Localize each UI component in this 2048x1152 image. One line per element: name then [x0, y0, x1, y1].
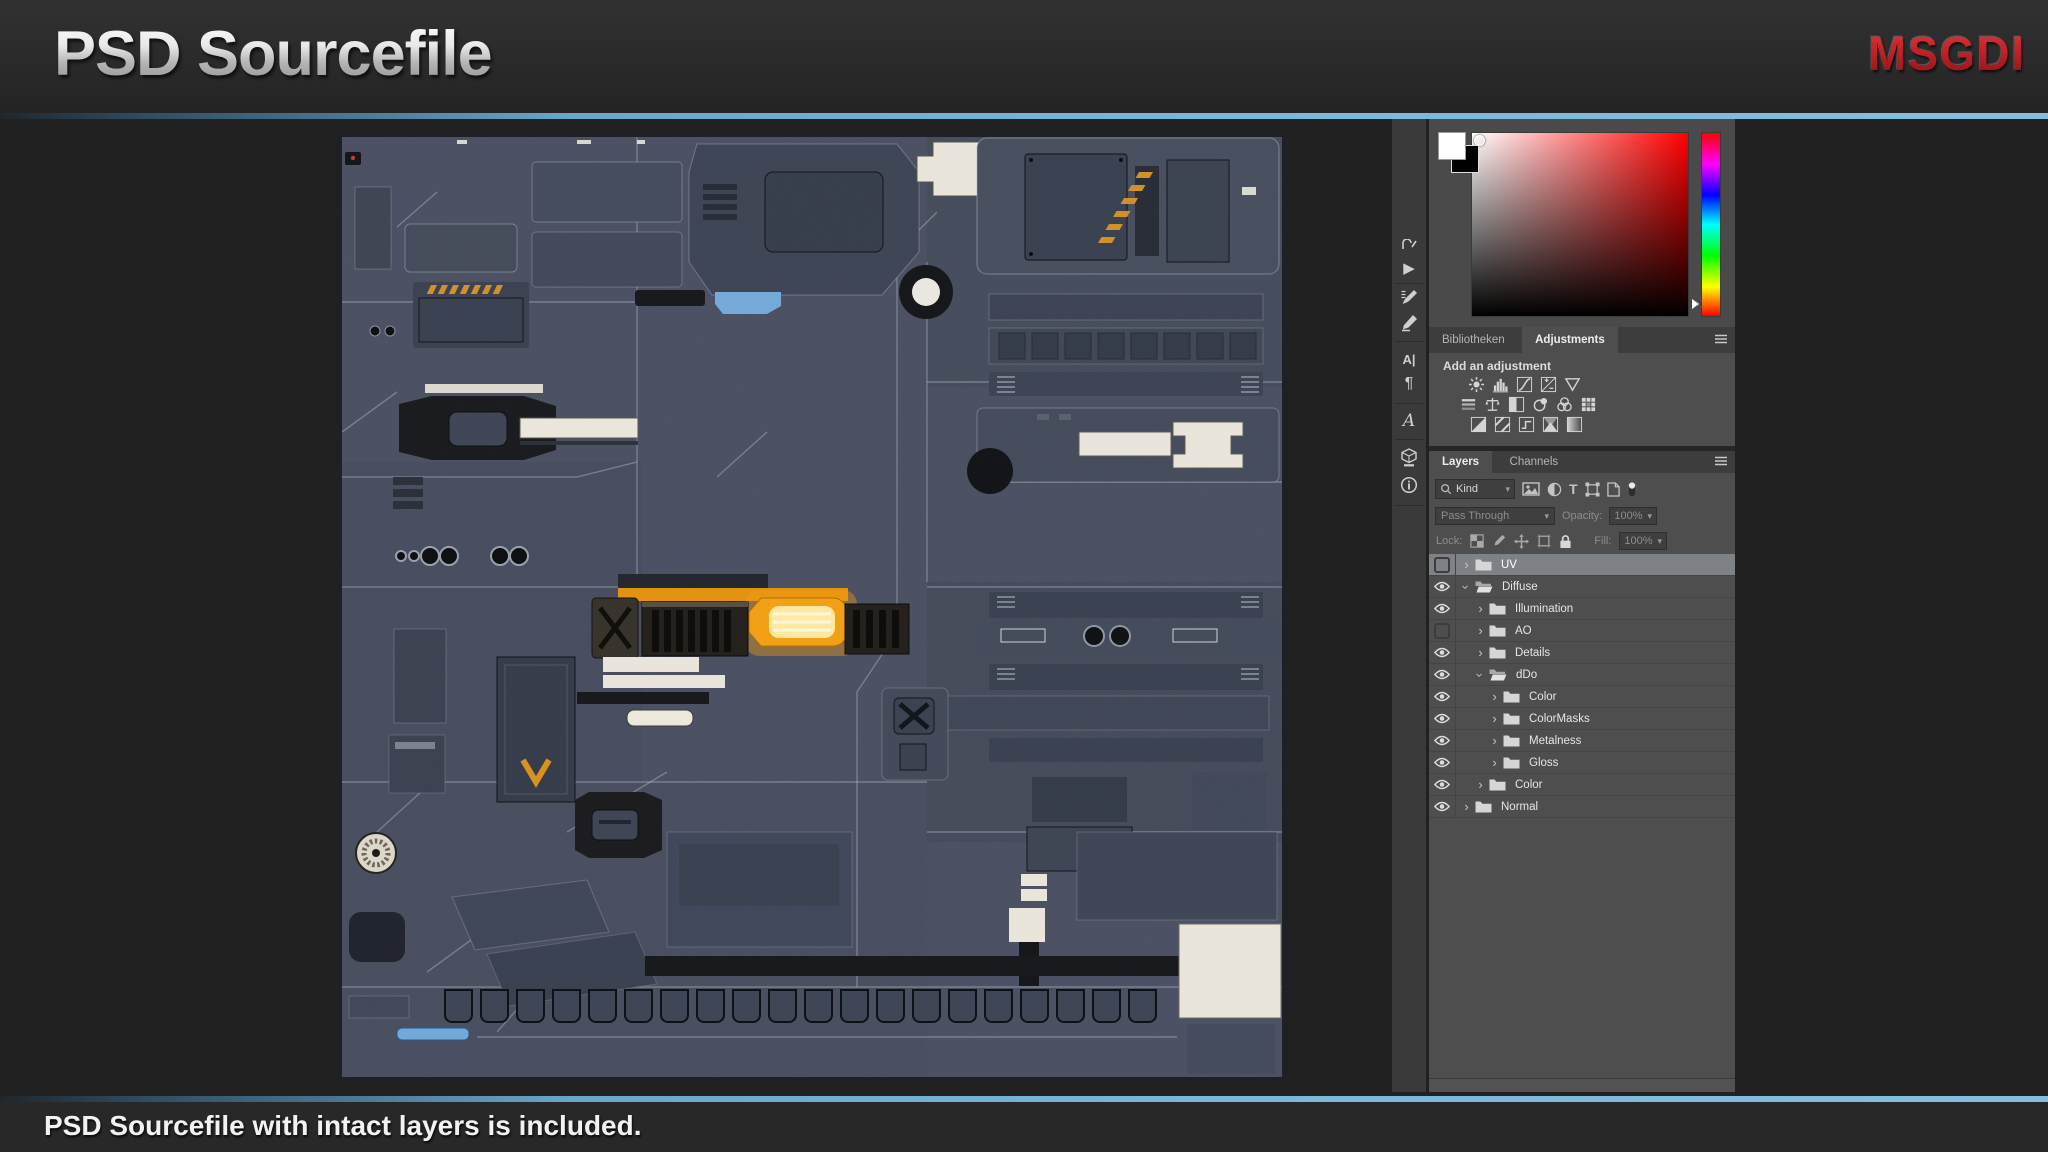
blend-mode-value: Pass Through: [1441, 510, 1509, 522]
layer-list: › UV › Diffuse › Illumination › AO › De: [1429, 554, 1735, 818]
blend-mode-row: Pass Through ▾ Opacity: 100% ▾: [1429, 505, 1735, 527]
chevron-down-icon: ▾: [1544, 512, 1549, 521]
layer-row[interactable]: › Details: [1429, 642, 1735, 664]
layer-name: Metalness: [1529, 735, 1581, 747]
tab-adjustments[interactable]: Adjustments: [1522, 327, 1618, 353]
black-white-icon[interactable]: [1508, 396, 1525, 413]
adjustments-panel: Add an adjustment: [1429, 353, 1735, 446]
layer-row[interactable]: › dDo: [1429, 664, 1735, 686]
expand-arrow-icon[interactable]: ›: [1474, 778, 1487, 791]
expand-arrow-icon[interactable]: ›: [1474, 646, 1487, 659]
opacity-value: 100%: [1614, 510, 1642, 522]
layer-name: Diffuse: [1502, 581, 1538, 593]
glyphs-panel-icon[interactable]: A: [1392, 410, 1426, 432]
pixel-layer-filter-icon[interactable]: [1522, 482, 1540, 496]
invert-icon[interactable]: [1470, 416, 1487, 433]
msgdi-logo: MSGDI: [1868, 26, 2026, 82]
search-icon: [1440, 483, 1452, 495]
folder-icon: [1489, 668, 1507, 681]
layer-row[interactable]: › Illumination: [1429, 598, 1735, 620]
color-picker-panel: [1429, 119, 1735, 327]
tab-layers[interactable]: Layers: [1429, 451, 1492, 473]
tab-channels[interactable]: Channels: [1497, 451, 1572, 473]
expand-arrow-icon[interactable]: ›: [1474, 602, 1487, 615]
expand-arrow-icon[interactable]: ›: [1488, 734, 1501, 747]
folder-icon: [1475, 558, 1492, 571]
visibility-toggle[interactable]: [1429, 642, 1456, 663]
folder-icon: [1489, 778, 1506, 791]
layer-row[interactable]: › UV: [1429, 554, 1735, 576]
clipped-tool-icon[interactable]: [1392, 238, 1426, 250]
page-title: PSD Sourcefile: [54, 18, 492, 90]
character-panel-icon[interactable]: A|: [1392, 349, 1426, 369]
channel-mixer-icon[interactable]: [1556, 396, 1573, 413]
adjustment-layer-filter-icon[interactable]: [1547, 482, 1562, 497]
top-accent-line: [0, 113, 2048, 119]
layer-row[interactable]: › ColorMasks: [1429, 708, 1735, 730]
photo-filter-icon[interactable]: [1532, 396, 1549, 413]
vibrance-icon[interactable]: [1564, 376, 1581, 393]
visibility-toggle[interactable]: [1429, 774, 1456, 795]
visibility-toggle[interactable]: [1429, 796, 1456, 817]
header-bar: PSD Sourcefile MSGDI: [0, 0, 2048, 113]
layer-name: Gloss: [1529, 757, 1558, 769]
type-layer-filter-icon[interactable]: T: [1569, 481, 1578, 497]
foreground-color-swatch[interactable]: [1438, 132, 1466, 160]
layer-filter-row: Kind ▾ T: [1429, 477, 1735, 501]
layer-name: Illumination: [1515, 603, 1573, 615]
opacity-input[interactable]: 100% ▾: [1609, 507, 1657, 525]
folder-icon: [1503, 712, 1520, 725]
folder-icon: [1489, 602, 1506, 615]
saturation-brightness-field[interactable]: [1471, 132, 1689, 317]
panel-menu-icon[interactable]: [1714, 453, 1728, 471]
fill-value: 100%: [1624, 535, 1652, 547]
chevron-down-icon: ▾: [1505, 485, 1510, 494]
layer-name: UV: [1501, 559, 1517, 571]
3d-material-icon[interactable]: [1392, 445, 1426, 469]
hue-slider[interactable]: [1701, 132, 1721, 317]
lock-all-icon[interactable]: [1559, 534, 1572, 549]
opacity-label: Opacity:: [1562, 510, 1602, 522]
paragraph-panel-icon[interactable]: ¶: [1392, 373, 1426, 395]
info-icon[interactable]: [1392, 474, 1426, 496]
layer-row[interactable]: › Normal: [1429, 796, 1735, 818]
layers-panel: Kind ▾ T Pass Through ▾ Opacity: 100%: [1429, 473, 1735, 1092]
add-adjustment-heading: Add an adjustment: [1429, 353, 1735, 373]
texture-map-canvas[interactable]: [337, 132, 1287, 1082]
exposure-icon[interactable]: [1540, 376, 1557, 393]
threshold-icon[interactable]: [1518, 416, 1535, 433]
folder-icon: [1489, 646, 1506, 659]
layer-row[interactable]: › Gloss: [1429, 752, 1735, 774]
layer-row[interactable]: › Metalness: [1429, 730, 1735, 752]
adjustments-tabbar: Bibliotheken Adjustments: [1429, 327, 1735, 353]
folder-icon: [1489, 624, 1506, 637]
brushes-icon[interactable]: [1392, 313, 1426, 333]
levels-icon[interactable]: [1492, 376, 1509, 393]
curves-icon[interactable]: [1516, 376, 1533, 393]
lock-label: Lock:: [1436, 535, 1462, 547]
kind-filter-label: Kind: [1456, 483, 1478, 495]
layer-name: Details: [1515, 647, 1550, 659]
photo-panel-icon-strip: ▶ A| ¶ A: [1392, 119, 1426, 1092]
visibility-toggle[interactable]: [1429, 664, 1456, 685]
folder-icon: [1503, 690, 1520, 703]
color-balance-icon[interactable]: [1484, 396, 1501, 413]
shape-layer-filter-icon[interactable]: [1585, 482, 1600, 497]
expand-arrow-icon[interactable]: ›: [1460, 800, 1473, 813]
visibility-toggle[interactable]: [1429, 576, 1456, 597]
folder-icon: [1503, 734, 1520, 747]
visibility-toggle[interactable]: [1429, 730, 1456, 751]
fill-label: Fill:: [1594, 535, 1611, 547]
kind-filter-dropdown[interactable]: Kind ▾: [1435, 479, 1515, 499]
brush-settings-icon[interactable]: [1392, 288, 1426, 308]
visibility-toggle[interactable]: [1429, 620, 1456, 641]
layer-name: Normal: [1501, 801, 1538, 813]
lock-artboard-icon[interactable]: [1537, 534, 1551, 548]
tab-bibliotheken[interactable]: Bibliotheken: [1429, 327, 1518, 353]
layer-name: ColorMasks: [1529, 713, 1590, 725]
layer-name: Color: [1529, 691, 1556, 703]
folder-icon: [1503, 756, 1520, 769]
layers-panel-footer: [1429, 1078, 1735, 1092]
filter-toggle-icon[interactable]: [1627, 480, 1637, 498]
gradient-map-icon[interactable]: [1542, 416, 1559, 433]
layer-name: Color: [1515, 779, 1542, 791]
folder-icon: [1475, 580, 1493, 593]
expand-arrow-icon[interactable]: ›: [1460, 558, 1473, 571]
layer-name: AO: [1515, 625, 1532, 637]
lock-transparent-pixels-icon[interactable]: [1470, 534, 1484, 548]
visibility-toggle[interactable]: [1429, 554, 1456, 575]
footer-bar: PSD Sourcefile with intact layers is inc…: [0, 1102, 2048, 1152]
visibility-toggle[interactable]: [1429, 598, 1456, 619]
photoshop-panels: Bibliotheken Adjustments Add an adjustme…: [1429, 119, 1735, 1092]
expand-arrow-icon[interactable]: ›: [1474, 624, 1487, 637]
smart-object-filter-icon[interactable]: [1607, 482, 1620, 497]
layer-row[interactable]: › AO: [1429, 620, 1735, 642]
layers-tabbar: Layers Channels: [1429, 451, 1735, 473]
page: PSD Sourcefile MSGDI: [0, 0, 2048, 1152]
layer-row[interactable]: › Color: [1429, 686, 1735, 708]
lock-image-pixels-icon[interactable]: [1492, 534, 1506, 548]
fill-input[interactable]: 100% ▾: [1619, 532, 1667, 550]
expand-arrow-icon[interactable]: ›: [1488, 690, 1501, 703]
layer-name: dDo: [1516, 669, 1537, 681]
hue-slider-arrow-icon[interactable]: [1692, 299, 1699, 309]
footer-caption: PSD Sourcefile with intact layers is inc…: [44, 1110, 642, 1142]
panel-menu-icon[interactable]: [1714, 331, 1728, 349]
brightness-contrast-icon[interactable]: [1468, 376, 1485, 393]
folder-icon: [1475, 800, 1492, 813]
expand-arrow-icon[interactable]: ›: [1473, 669, 1486, 682]
lock-row: Lock: Fill: 100% ▾: [1429, 531, 1735, 551]
layer-row[interactable]: › Color: [1429, 774, 1735, 796]
layer-row[interactable]: › Diffuse: [1429, 576, 1735, 598]
expand-arrow-icon[interactable]: ›: [1488, 756, 1501, 769]
play-actions-icon[interactable]: ▶: [1392, 258, 1426, 278]
expand-arrow-icon[interactable]: ›: [1459, 581, 1472, 594]
visibility-toggle[interactable]: [1429, 752, 1456, 773]
expand-arrow-icon[interactable]: ›: [1488, 712, 1501, 725]
posterize-icon[interactable]: [1494, 416, 1511, 433]
color-lookup-icon[interactable]: [1580, 396, 1597, 413]
visibility-toggle[interactable]: [1429, 686, 1456, 707]
blend-mode-dropdown[interactable]: Pass Through ▾: [1435, 507, 1555, 525]
visibility-toggle[interactable]: [1429, 708, 1456, 729]
selective-color-icon[interactable]: [1566, 416, 1583, 433]
lock-position-icon[interactable]: [1514, 534, 1529, 549]
chevron-down-icon: ▾: [1648, 512, 1653, 521]
hue-saturation-icon[interactable]: [1460, 396, 1477, 413]
chevron-down-icon: ▾: [1658, 537, 1663, 546]
